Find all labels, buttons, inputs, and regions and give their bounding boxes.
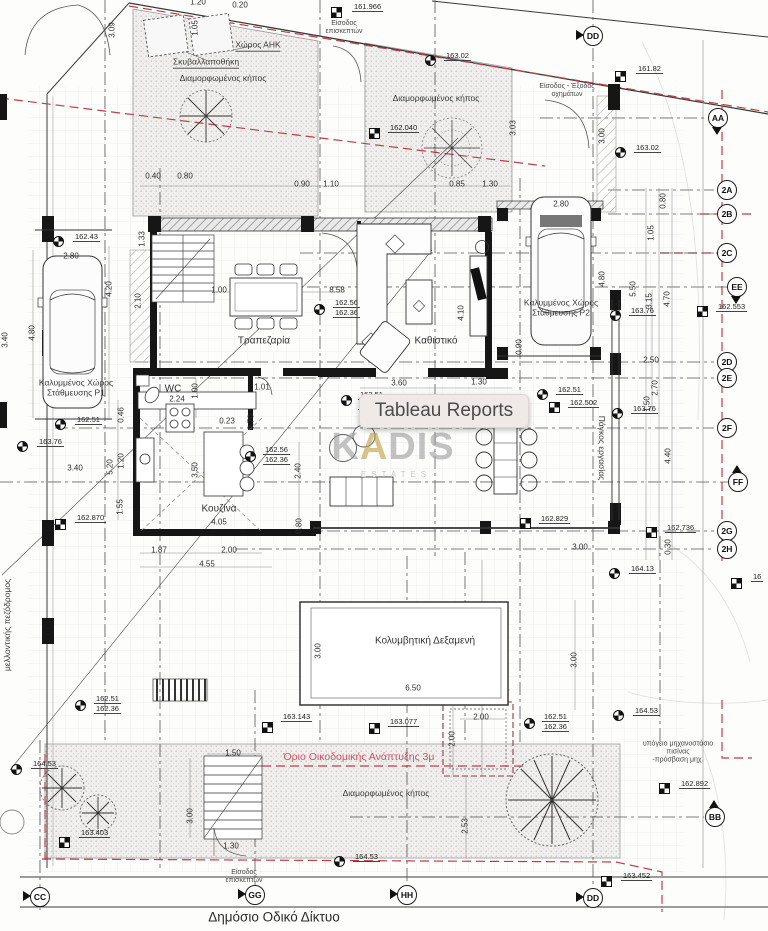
plan-label: Είσοδος επισκεπτών <box>326 20 363 36</box>
level-value: 161.966 <box>352 2 383 12</box>
level-value: 162.870 <box>75 513 106 523</box>
grid-bubble: 2F <box>717 418 737 438</box>
dimension-label: 3.00 <box>571 652 580 668</box>
level-value-line: 162.36 <box>263 455 290 465</box>
section-marker-triangle <box>23 891 31 901</box>
level-value-line: 162.51 <box>542 712 569 722</box>
level-marker <box>17 441 28 452</box>
level-value-line: 162.36 <box>94 704 121 714</box>
grid-bubble: 2E <box>717 368 737 388</box>
level-value-line: 162.51 <box>94 694 121 704</box>
level-value-line: 162.040 <box>388 123 419 133</box>
plan-label: υπόγειο μηχανοστάσιο πισίνας -πρόσβαση μ… <box>633 740 723 763</box>
dimension-label: 4.05 <box>211 519 227 528</box>
grid-bubble-label: FF <box>733 477 743 487</box>
section-marker-triangle <box>712 127 722 135</box>
dimension-label: 4.80 <box>599 271 608 287</box>
level-marker <box>262 722 273 733</box>
level-value-line: 162.36 <box>542 722 569 732</box>
plan-label: Κολυμβητική Δεξαμενή <box>375 635 475 646</box>
level-value-line: 163.02 <box>444 51 471 61</box>
grid-bubble: 2G <box>717 521 737 541</box>
grid-bubble: DD <box>583 888 603 908</box>
grid-bubble-label: EE <box>731 282 742 292</box>
dimension-label: 0.30 <box>665 539 674 555</box>
level-marker <box>524 718 535 729</box>
level-value: 162.51162.36 <box>542 712 569 732</box>
level-value: 163.143 <box>281 712 312 722</box>
section-marker-triangle <box>576 30 584 40</box>
grid-bubble-label: BB <box>709 812 721 822</box>
plan-label: Καλυμμένος Χώρος Στάθμευσης P1 <box>39 378 113 397</box>
level-marker <box>425 55 436 66</box>
level-marker <box>369 723 380 734</box>
dimension-label: 1.05 <box>648 225 657 241</box>
dimension-label: 6.50 <box>405 685 421 694</box>
plan-label: Καλυμμένος Χώρος Στάθμευσης P2 <box>524 298 598 317</box>
section-marker-triangle <box>709 800 719 808</box>
level-value: 163.403 <box>79 828 110 838</box>
dimension-label: 0.90 <box>294 181 310 190</box>
plan-label: Χώρος ΑΗΚ <box>235 41 280 52</box>
grid-bubble: BB <box>705 807 725 827</box>
level-value-line: 163.077 <box>388 717 419 727</box>
level-marker <box>615 71 626 82</box>
grid-bubble: FF <box>728 472 748 492</box>
dimension-label: 4.40 <box>665 448 674 464</box>
dimension-label: 1.20 <box>118 453 127 469</box>
grid-bubble-label: CC <box>34 892 46 902</box>
dimension-label: 1.33 <box>139 231 148 247</box>
grid-bubble-label: AA <box>712 113 724 123</box>
grid-bubble: 2A <box>717 180 737 200</box>
watermark-accent-letter: A <box>360 426 388 468</box>
dimension-label: 2.70 <box>652 380 661 396</box>
dimension-label: 3.40 <box>67 465 83 474</box>
dimension-label: 1.00 <box>211 287 227 296</box>
level-marker <box>75 700 86 711</box>
grid-bubble: 2H <box>717 539 737 559</box>
level-marker <box>610 310 621 321</box>
section-marker-triangle <box>390 889 398 899</box>
dimension-label: 2.50 <box>643 357 659 366</box>
level-value: 161.82 <box>636 64 663 74</box>
level-value: 16 <box>751 572 763 582</box>
dimension-label: 0.80 <box>296 518 305 534</box>
dimension-label: 5.50 <box>630 281 639 297</box>
level-value-line: 164.53 <box>633 706 660 716</box>
level-value: 162.51162.36 <box>94 694 121 714</box>
dimension-label: 1.30 <box>482 181 498 190</box>
grid-bubble: 2B <box>717 204 737 224</box>
dimension-label: 3.00 <box>315 643 324 659</box>
plan-label: Πάγκος εργασίας <box>596 416 606 481</box>
dimension-label: 8.58 <box>329 287 345 296</box>
level-marker <box>601 876 612 887</box>
dimension-label: 1.55 <box>117 499 126 515</box>
level-marker <box>341 395 352 406</box>
dimension-label: 0.46 <box>118 407 127 423</box>
level-marker <box>659 783 670 794</box>
grid-bubble-label: 2D <box>722 357 733 367</box>
dimension-label: 0.90 <box>516 339 525 355</box>
level-value-line: 164.53 <box>353 852 380 862</box>
dimension-label: 0.70 <box>248 414 257 430</box>
level-value: 162.56162.36 <box>333 298 360 318</box>
level-value-line: 162.502 <box>568 398 599 408</box>
section-marker-triangle <box>731 296 741 304</box>
floor-plan-screenshot: 1.200.203.091.05Χώρος ΑΗΚΣκυβαλλαποθήκηΔ… <box>0 0 768 931</box>
tableau-reports-tooltip[interactable]: Tableau Reports <box>359 394 529 428</box>
grid-bubble-label: DD <box>587 893 599 903</box>
level-value: 163.02 <box>444 51 471 61</box>
grid-bubble: CC <box>30 887 50 907</box>
level-value-line: 163.76 <box>631 404 658 414</box>
level-marker <box>11 764 22 775</box>
dimension-label: 4.20 <box>106 281 115 297</box>
grid-bubble-label: DD <box>587 31 599 41</box>
dimension-label: 0.80 <box>660 193 669 209</box>
level-marker <box>520 518 531 529</box>
level-value-line: 163.403 <box>79 828 110 838</box>
level-value: 164.53 <box>353 852 380 862</box>
dimension-label: 3.09 <box>109 22 118 38</box>
dimension-label: 2.00 <box>221 547 237 556</box>
section-marker-triangle <box>576 892 584 902</box>
level-value-line: 162.56 <box>333 298 360 308</box>
level-value: 164.53 <box>31 759 58 769</box>
level-value-line: 162.51 <box>75 415 102 425</box>
dimension-label: 2.00 <box>473 714 489 723</box>
plan-label: μελλοντικής πεζόδρομος <box>3 579 13 671</box>
watermark-letters: DIS <box>388 426 454 468</box>
level-marker <box>245 451 256 462</box>
dimension-label: 4.55 <box>199 561 215 570</box>
level-value: 163.76 <box>631 404 658 414</box>
level-value-line: 163.452 <box>621 871 652 881</box>
grid-bubble: DD <box>583 26 603 46</box>
level-marker <box>609 568 620 579</box>
level-value-line: 162.736 <box>665 523 696 533</box>
dimension-label: 3.60 <box>391 380 407 389</box>
kadis-watermark: KADIS <box>328 428 458 466</box>
level-value-line: 164.13 <box>629 564 656 574</box>
level-value-line: 163.76 <box>37 437 64 447</box>
plan-label: Όριο Οικοδομικής Ανάπτυξης 3μ <box>284 752 435 764</box>
level-value-line: 162.51 <box>556 385 583 395</box>
grid-bubble-label: 2B <box>722 209 733 219</box>
level-value-line: 162.870 <box>75 513 106 523</box>
level-marker <box>731 578 742 589</box>
dimension-label: 3.03 <box>510 120 519 136</box>
dimension-label: 3.40 <box>2 332 11 348</box>
level-value-line: 161.82 <box>636 64 663 74</box>
dimension-label: 2.80 <box>63 253 79 262</box>
level-value: 162.892 <box>679 779 710 789</box>
dimension-label: 1.30 <box>471 379 487 388</box>
grid-bubble: AA <box>708 108 728 128</box>
level-value-line: 161.966 <box>352 2 383 12</box>
dimension-label: 1.50 <box>225 750 241 759</box>
level-value: 162.829 <box>539 514 570 524</box>
level-marker <box>55 519 66 530</box>
level-marker <box>549 402 560 413</box>
level-marker <box>334 856 345 867</box>
grid-bubble-label: 2G <box>721 526 732 536</box>
level-value: 162.43 <box>73 232 100 242</box>
grid-bubble-label: 2E <box>722 373 732 383</box>
dimension-label: 1.30 <box>223 843 239 852</box>
watermark-letter: K <box>331 426 359 468</box>
grid-bubble: HH <box>397 885 417 905</box>
level-value-line: 162.43 <box>73 232 100 242</box>
dimension-label: 2.00 <box>449 731 458 747</box>
plan-label: Είσοδος επισκεπτών <box>226 869 263 885</box>
dimension-label: 4.10 <box>458 305 467 321</box>
level-marker <box>613 710 624 721</box>
level-value: 164.53 <box>633 706 660 716</box>
plan-label: Δημόσιο Οδικό Δίκτυο <box>208 909 340 924</box>
grid-bubble: GG <box>245 885 265 905</box>
level-value: 162.56162.36 <box>263 445 290 465</box>
grid-bubble-label: 2H <box>722 544 733 554</box>
level-value: 163.077 <box>388 717 419 727</box>
dimension-label: 1.10 <box>323 181 339 190</box>
plan-label: Καθιστικό <box>415 335 458 346</box>
level-marker <box>537 389 548 400</box>
dimension-label: 4.80 <box>29 325 38 341</box>
level-marker <box>331 7 342 18</box>
level-value-line: 16 <box>751 572 763 582</box>
dimension-label: 4.70 <box>664 291 673 307</box>
dimension-label: 0.40 <box>145 173 161 182</box>
level-value-line: 162.36 <box>333 308 360 318</box>
grid-bubble-label: HH <box>401 890 413 900</box>
dimension-label: 1.05 <box>192 20 201 36</box>
dimension-label: 3.50 <box>192 462 201 478</box>
plan-label: Τραπεζαρία <box>238 335 290 346</box>
level-value: 162.51 <box>75 415 102 425</box>
dimension-label: 0.85 <box>449 181 465 190</box>
dimension-label: 3.00 <box>187 808 196 824</box>
dimension-label: 2.53 <box>462 818 471 834</box>
dimension-label: 2.10 <box>135 293 144 309</box>
level-value: 163.76 <box>37 437 64 447</box>
tooltip-label: Tableau Reports <box>375 400 513 422</box>
dimension-label: 5.20 <box>107 459 116 475</box>
plan-label: Διαμορφωμένος κήπος <box>343 789 430 799</box>
grid-bubble: 2C <box>717 243 737 263</box>
dimension-label: 2.40 <box>295 463 304 479</box>
dimension-label: 0.20 <box>232 2 248 11</box>
level-value: 163.76 <box>629 306 656 316</box>
section-marker-triangle <box>238 889 246 899</box>
dimension-label: 2.80 <box>553 201 569 210</box>
grid-bubble-label: 2A <box>722 185 733 195</box>
plan-label: Σκυβαλλαποθήκη <box>173 58 239 69</box>
level-value-line: 163.76 <box>629 306 656 316</box>
dimension-label: 0.23 <box>219 418 235 427</box>
plan-label: Κουζίνα <box>202 503 237 514</box>
plan-label: Διαμορφωμένος κήπος <box>180 74 267 84</box>
level-marker <box>615 147 626 158</box>
level-value: 163.452 <box>621 871 652 881</box>
level-value-line: 164.53 <box>31 759 58 769</box>
level-marker <box>314 304 325 315</box>
dimension-label: 2.24 <box>169 396 185 405</box>
grid-bubble-label: 2F <box>722 423 732 433</box>
grid-bubble: EE <box>727 277 747 297</box>
level-marker <box>59 837 70 848</box>
plan-label: Είσοδος - Έξοδος οχημάτων <box>539 83 594 99</box>
level-value-line: 163.02 <box>634 143 661 153</box>
dimension-label: 3.00 <box>572 544 588 553</box>
dimension-label: 1.87 <box>151 547 167 556</box>
level-value-line: 162.892 <box>679 779 710 789</box>
level-value: 162.51 <box>556 385 583 395</box>
level-value-line: 163.143 <box>281 712 312 722</box>
level-value: 162.040 <box>388 123 419 133</box>
level-value: 163.02 <box>634 143 661 153</box>
level-marker <box>612 408 623 419</box>
level-marker <box>697 306 708 317</box>
level-marker <box>53 236 64 247</box>
dimension-label: 1.01 <box>254 384 270 393</box>
kadis-watermark-subtext: ESTATES <box>336 470 456 479</box>
level-marker <box>646 527 657 538</box>
dimension-label: 3.00 <box>599 128 608 144</box>
level-marker <box>369 128 380 139</box>
grid-bubble-label: 2C <box>722 248 733 258</box>
level-value: 162.502 <box>568 398 599 408</box>
grid-bubble-label: GG <box>248 890 261 900</box>
level-marker <box>55 419 66 430</box>
level-value: 164.13 <box>629 564 656 574</box>
plan-label: Διαμορφωμένος κήπος <box>393 94 480 104</box>
section-marker-triangle <box>732 465 742 473</box>
level-value: 162.736 <box>665 523 696 533</box>
dimension-label: 1.00 <box>192 383 201 399</box>
plan-label: WC <box>165 383 182 394</box>
level-value-line: 162.829 <box>539 514 570 524</box>
dimension-label: 1.20 <box>190 0 206 7</box>
level-value-line: 162.56 <box>263 445 290 455</box>
dimension-label: 0.80 <box>177 173 193 182</box>
